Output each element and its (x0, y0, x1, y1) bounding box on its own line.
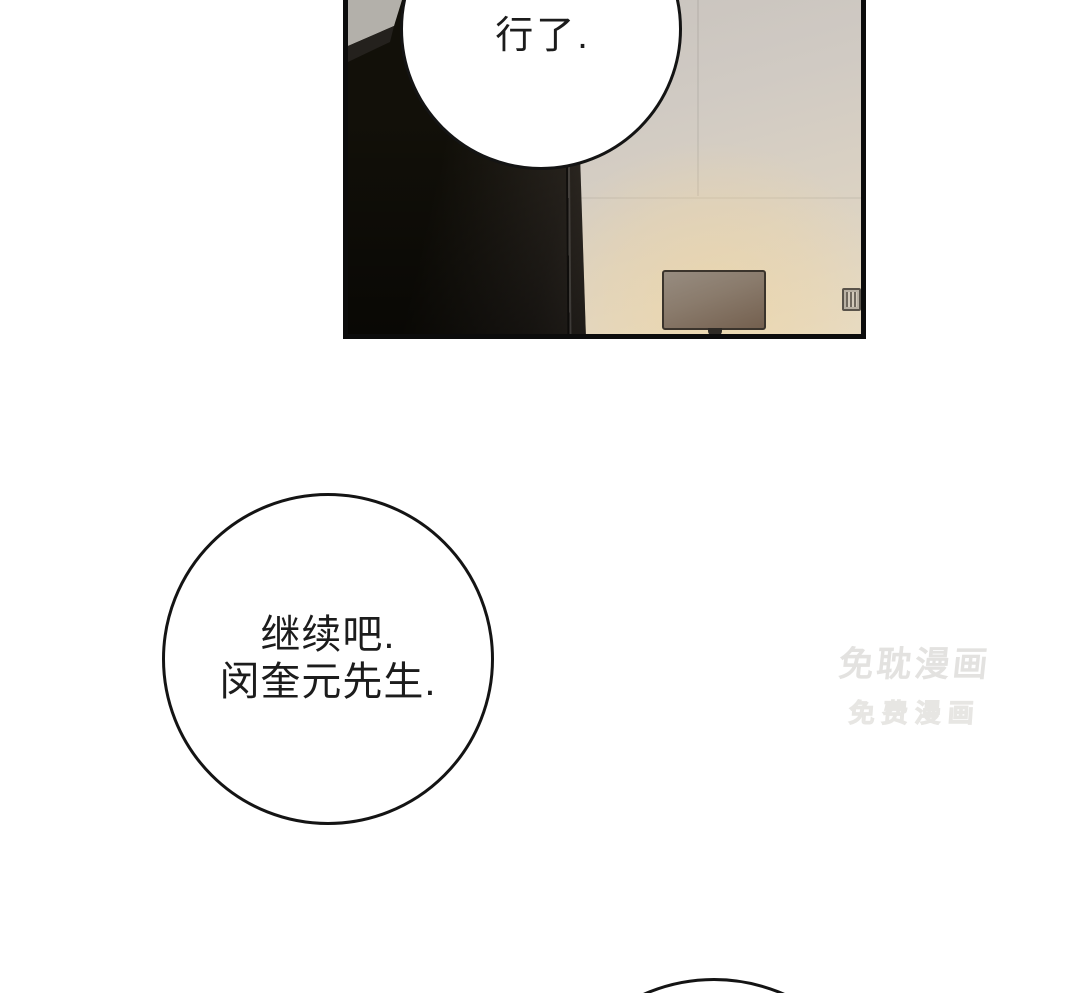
comic-page: 行了. 继续吧. 闵奎元先生. 免耽漫画 免费漫画 (0, 0, 1080, 993)
wall-switch-slats (846, 292, 857, 307)
speech-text-middle-line2: 闵奎元先生. (219, 659, 436, 706)
speech-text-top: 行了. (433, 4, 653, 59)
watermark-line1: 免耽漫画 (797, 636, 1032, 687)
speech-text-middle: 继续吧. 闵奎元先生. (219, 612, 436, 706)
lamp-stem (708, 328, 722, 336)
watermark-line2: 免费漫画 (799, 693, 1032, 730)
wall-switch (842, 288, 861, 311)
wall-lamp (662, 270, 766, 330)
speech-bubble-bottom-partial (539, 978, 889, 993)
watermark: 免耽漫画 免费漫画 (800, 636, 1030, 730)
speech-bubble-middle: 继续吧. 闵奎元先生. (162, 493, 494, 825)
speech-text-middle-line1: 继续吧. (219, 612, 436, 659)
